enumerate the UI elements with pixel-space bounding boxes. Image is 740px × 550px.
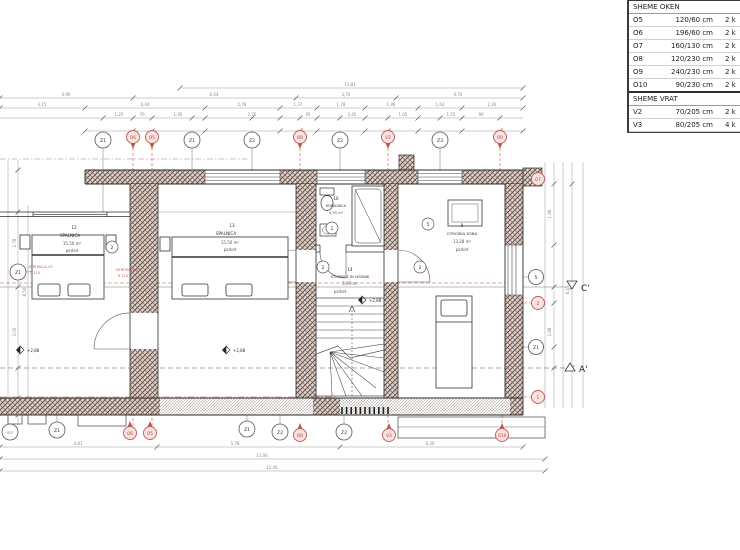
room-name: STOPNICE IN HODNIK (331, 275, 370, 279)
section-marker-c: C' (567, 281, 590, 294)
room-area: 15,50 m² (63, 241, 82, 246)
room-area: 15,50 m² (221, 240, 240, 245)
legend-row-door: V3 80/205 cm 4 k (629, 119, 740, 132)
dim-label: 5,78 (231, 441, 240, 446)
room-name: SPALNICA (60, 233, 80, 238)
red-note: fi 110 (118, 274, 128, 278)
grid-bubble: Z1 (49, 422, 65, 438)
legend-row-window: O8 120/230 cm 2 k (629, 53, 740, 66)
grid-bubble: Z3 (432, 132, 448, 148)
dim-label: 95 (305, 112, 311, 117)
floorplan-canvas: 11,81 4,90 6,04 3,70 4,70 3,15 4,44 2,78… (0, 0, 740, 550)
svg-text:Z1: Z1 (54, 428, 60, 434)
position-balloon: O8 (294, 131, 307, 150)
window-size: 240/230 cm (655, 66, 713, 78)
red-note: VERTIKALA V1 (28, 265, 53, 269)
dim-label: 4,90 (62, 92, 71, 97)
svg-text:Z1: Z1 (533, 345, 539, 351)
window-code: O10 (629, 79, 655, 91)
position-balloon: O10 (496, 423, 509, 442)
svg-text:O8: O8 (297, 433, 303, 438)
section-marker-a: A' (565, 363, 588, 375)
position-balloon: O8 (294, 423, 307, 442)
section-label: A' (579, 365, 588, 375)
room-name: SPALNICA (216, 231, 236, 236)
grid-bubble: Z2 (332, 132, 348, 148)
dim-label: 2,98 (547, 327, 552, 336)
legend-row-window: O10 90/230 cm 2 k (629, 79, 740, 93)
legend-row-door: V2 70/205 cm 2 k (629, 106, 740, 119)
svg-text:O6: O6 (127, 431, 133, 436)
position-balloon: O9 (494, 131, 507, 150)
position-balloon: V2 (382, 131, 395, 150)
dim-label: 8,41 (565, 285, 570, 294)
dim-label: 90 (478, 112, 484, 117)
dim-label: 1,66 (547, 209, 552, 218)
window-size: 120/60 cm (655, 14, 713, 26)
svg-text:O6: O6 (130, 135, 136, 140)
grid-bubbles-top: Z1 O6 O5 Z1 Z2 O8 Z2 V2 Z3 O9 (95, 131, 507, 150)
red-note: VERTIKALA V1 (116, 268, 141, 272)
bath-partition-wall (316, 245, 384, 278)
chimney-block (399, 155, 414, 170)
room-area: 5,95 m² (342, 281, 358, 286)
dim-label: 1,25 (115, 112, 124, 117)
window-top-2 (317, 170, 365, 184)
position-balloon: O6 (127, 131, 140, 150)
window-qty: 2 k (713, 79, 736, 91)
door-code: V2 (629, 106, 655, 118)
section-label: C' (581, 284, 590, 294)
dim-label: 2,26 (488, 102, 497, 107)
grid-bubble: 011 (2, 424, 18, 440)
position-balloon: O5 (144, 421, 157, 440)
dim-label: 6,04 (210, 92, 219, 97)
svg-text:2: 2 (322, 265, 325, 271)
outer-wall-right (505, 184, 523, 398)
legend-row-window: O9 240/230 cm 2 k (629, 66, 740, 79)
window-top-3 (418, 170, 462, 184)
room-number: 14 (347, 267, 353, 272)
grid-bubble: Z2 (272, 424, 288, 440)
svg-text:5: 5 (427, 222, 430, 228)
window-qty: 2 k (713, 66, 736, 78)
svg-text:Z2: Z2 (337, 138, 343, 144)
doors-section-title: SHEME VRAT (629, 93, 740, 106)
room-number: 12 (71, 225, 77, 230)
window-size: 90/230 cm (655, 79, 713, 91)
svg-text:Z1: Z1 (100, 138, 106, 144)
dim-label: 1,95 (174, 112, 183, 117)
room-floor: parket (334, 289, 347, 294)
window-qty: 2 k (713, 40, 736, 52)
dim-label: 4,44 (141, 102, 150, 107)
grid-bubble: Z1 (239, 421, 255, 437)
grid-bubble: Z1 (95, 132, 111, 148)
svg-text:V2: V2 (385, 135, 391, 140)
svg-text:V3: V3 (386, 433, 392, 438)
legend-row-window: O7 160/130 cm 2 k (629, 40, 740, 53)
room-floor: parket (224, 247, 237, 252)
dim-label: 3,70 (342, 92, 351, 97)
svg-text:O9: O9 (497, 135, 503, 140)
svg-text:1: 1 (537, 395, 540, 400)
window-code: O7 (629, 40, 655, 52)
svg-text:011: 011 (7, 431, 13, 435)
room-number: 16 (333, 196, 339, 201)
door-qty: 2 k (713, 106, 736, 118)
door-qty: 4 k (713, 119, 736, 131)
legend-row-window: O6 196/60 cm 2 k (629, 27, 740, 40)
window-size: 120/230 cm (655, 53, 713, 65)
red-note: fi 110 (30, 271, 40, 275)
svg-text:Z2: Z2 (277, 430, 283, 436)
grid-bubble: Z2 (336, 424, 352, 440)
window-code: O9 (629, 66, 655, 78)
svg-text:5: 5 (535, 275, 538, 281)
room-number: 13 (229, 223, 235, 228)
stairs (316, 298, 384, 396)
grid-bubble: Z1 (10, 264, 26, 280)
window-qty: 2 k (713, 27, 736, 39)
window-code: O6 (629, 27, 655, 39)
position-balloon: 1 (532, 391, 545, 404)
item-bubble: 5 (422, 218, 434, 230)
room-label-hall: 14 STOPNICE IN HODNIK 5,95 m² parket (331, 267, 370, 294)
item-bubble: 2 (317, 261, 329, 273)
annex-wall (0, 212, 130, 217)
room-floor: parket (66, 248, 79, 253)
position-balloon: V3 (383, 423, 396, 442)
dim-label: 4,81 (74, 441, 83, 446)
room-area: 13,28 m² (453, 239, 472, 244)
bathtub (352, 186, 384, 246)
position-balloon: O6 (124, 421, 137, 440)
dim-label: 11,06 (256, 453, 268, 458)
svg-text:Z1: Z1 (244, 427, 250, 433)
core-wall-right (384, 184, 430, 398)
dim-label: 1,05 (399, 112, 408, 117)
svg-text:Z1: Z1 (189, 138, 195, 144)
window-code: O5 (629, 14, 655, 26)
svg-text:2: 2 (111, 245, 114, 251)
dim-label: 4,70 (454, 92, 463, 97)
grid-bubble: Z1 (184, 132, 200, 148)
svg-text:O5: O5 (149, 135, 155, 140)
top-dimension-lines (0, 86, 526, 134)
position-balloon: 2 (532, 297, 545, 310)
dim-label: 1,37 (294, 102, 303, 107)
desk-kids (448, 200, 482, 226)
dim-label: 1,63 (436, 102, 445, 107)
grid-bubble: 5 (529, 270, 544, 285)
window-qty: 2 k (713, 53, 736, 65)
svg-text:2: 2 (419, 265, 422, 271)
dim-label: 12,45 (266, 465, 278, 470)
svg-text:O5: O5 (147, 431, 153, 436)
position-balloon: O7 (532, 173, 545, 186)
svg-text:1: 1 (331, 226, 334, 232)
svg-text:O8: O8 (297, 135, 303, 140)
position-balloon: O5 (146, 131, 159, 150)
dim-label: 2,78 (238, 102, 247, 107)
dim-label: 2,45 (348, 112, 357, 117)
dim-label: 2,70 (248, 112, 257, 117)
grid-bubbles-right: O7 5 2 Z1 1 (529, 173, 545, 404)
level-value: +2,88 (233, 348, 246, 353)
room-name: OTROŠKA SOBA (447, 231, 478, 236)
grid-bubble: Z2 (244, 132, 260, 148)
level-markers: +2,88 +2,88 +2,88 (16, 296, 382, 354)
item-bubble: 1 (326, 222, 338, 234)
door-size: 80/205 cm (655, 119, 713, 131)
room-area: 4,95 m² (329, 211, 344, 215)
door-size: 70/205 cm (655, 106, 713, 118)
bed-kids (436, 296, 472, 388)
svg-text:O10: O10 (498, 433, 507, 438)
outer-wall-bottom (0, 398, 523, 415)
windows-section-title: SHEME OKEN (629, 1, 740, 14)
window-top-1 (205, 170, 280, 184)
room-floor: parket (456, 247, 469, 252)
svg-text:O7: O7 (535, 177, 541, 182)
dim-label: 3,05 (12, 327, 17, 336)
window-size: 196/60 cm (655, 27, 713, 39)
room-number: 9 (461, 223, 464, 228)
dim-label: 6,30 (426, 441, 435, 446)
window-code: O8 (629, 53, 655, 65)
item-bubble: 2 (106, 241, 118, 253)
dim-label: 3,15 (38, 102, 47, 107)
legend-row-window: O5 120/60 cm 2 k (629, 14, 740, 27)
svg-text:Z2: Z2 (341, 430, 347, 436)
window-qty: 2 k (713, 14, 736, 26)
window-size: 160/130 cm (655, 40, 713, 52)
room-name: KOPALNICA (326, 204, 347, 208)
dim-label: 2,78 (12, 238, 17, 247)
dim-label: 1,96 (387, 102, 396, 107)
level-value: +2,88 (27, 348, 40, 353)
level-value: +2,88 (369, 298, 382, 303)
svg-text:Z2: Z2 (249, 138, 255, 144)
room-label-kids: 9 OTROŠKA SOBA 13,28 m² parket (447, 223, 478, 252)
svg-text:2: 2 (537, 301, 540, 306)
dim-label: 70 (139, 112, 145, 117)
legend-table: SHEME OKEN O5 120/60 cm 2 k O6 196/60 cm… (627, 0, 740, 133)
door-code: V3 (629, 119, 655, 131)
dim-label: 1,55 (447, 112, 456, 117)
right-dimension-lines (545, 162, 583, 408)
svg-text:Z1: Z1 (15, 270, 21, 276)
grid-bubble: Z1 (529, 340, 544, 355)
item-bubble: 2 (414, 261, 426, 273)
dim-label: 1,78 (337, 102, 346, 107)
dim-label: 8,50 (22, 287, 27, 296)
svg-text:Z3: Z3 (437, 138, 443, 144)
dim-label: 11,81 (344, 82, 356, 87)
